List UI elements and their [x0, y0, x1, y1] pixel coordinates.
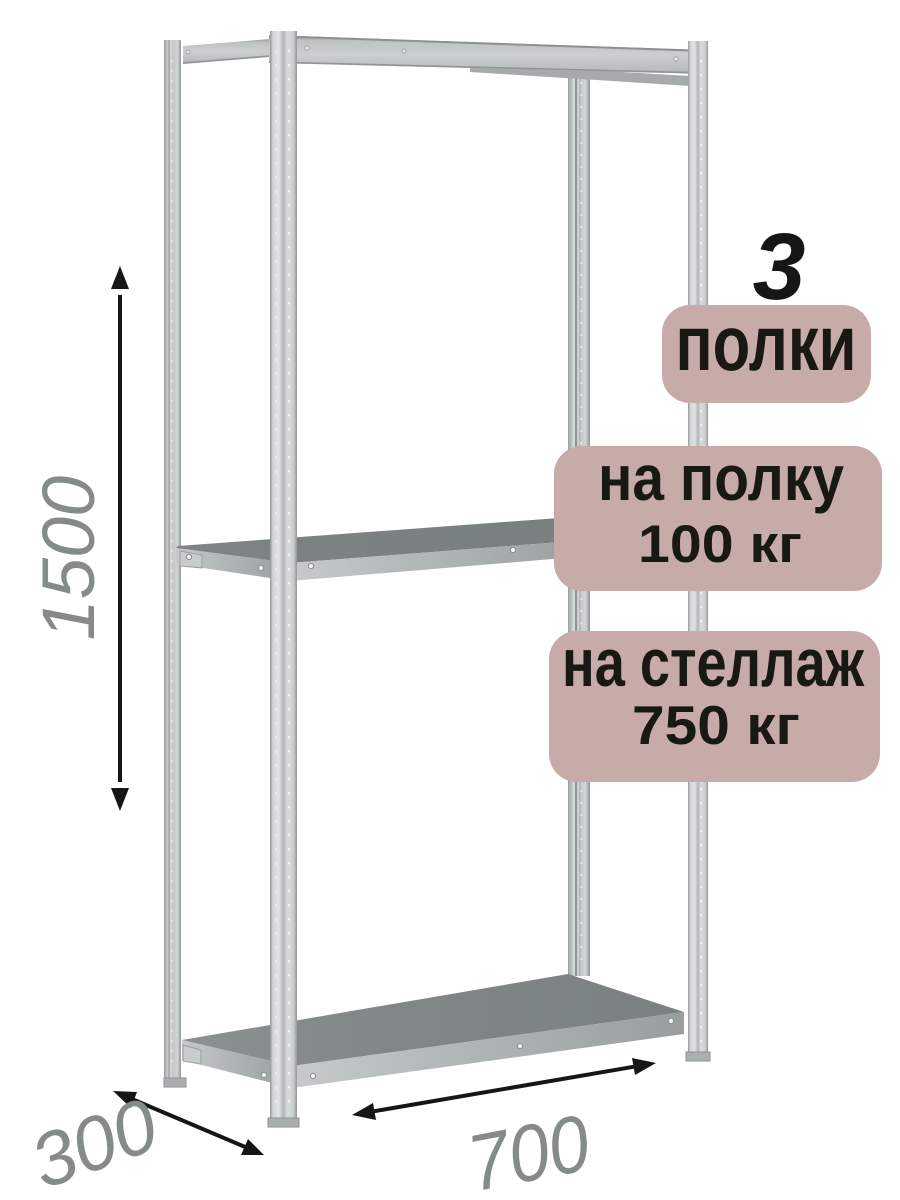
- svg-text:полки: полки: [676, 299, 857, 387]
- svg-text:750 кг: 750 кг: [632, 694, 800, 756]
- svg-text:100 кг: 100 кг: [638, 515, 802, 574]
- svg-text:на полку: на полку: [598, 442, 844, 514]
- svg-text:на стеллаж: на стеллаж: [562, 625, 865, 701]
- svg-text:1500: 1500: [27, 476, 110, 641]
